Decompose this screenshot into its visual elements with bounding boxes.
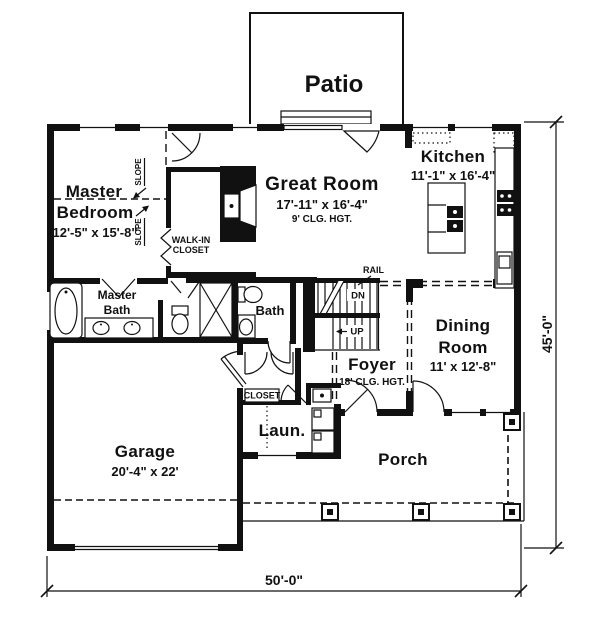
laundry-fixtures	[312, 389, 334, 453]
rail-label: RAIL	[363, 265, 384, 275]
great-room-dims: 17'-11" x 16'-4"	[276, 197, 368, 212]
great-room-label: Great Room	[265, 174, 379, 195]
wall-oven	[497, 190, 514, 202]
master-bath-label-2: Bath	[104, 303, 131, 317]
upper-cabinets	[413, 133, 450, 143]
patio-door-swing	[344, 131, 379, 152]
floor-plan-page: Patio Master Bedroom 12'-5" x 15'-8" SLO…	[0, 0, 600, 619]
dining-room-dims: 11' x 12'-8"	[430, 359, 497, 374]
stairs-up-label: UP	[350, 327, 364, 338]
closet-door-left	[245, 352, 267, 374]
slope-label-1: SLOPE	[134, 158, 143, 186]
up-arrow	[336, 329, 342, 335]
master-bath-fixtures	[50, 282, 232, 338]
master-bath-label-1: Master	[98, 288, 137, 302]
walk-in-closet-label-1: WALK-IN	[172, 235, 211, 245]
double-vanity	[85, 318, 153, 338]
walk-in-closet-label-2: CLOSET	[173, 245, 210, 255]
garage-label: Garage	[115, 442, 175, 461]
garage-dims: 20'-4" x 22'	[111, 464, 178, 479]
patio-area	[250, 13, 403, 127]
patio-door-panel	[284, 126, 342, 130]
fireplace	[220, 166, 256, 242]
dining-room-label-2: Room	[438, 338, 487, 357]
laundry-label: Laun.	[259, 421, 306, 440]
dining-door	[413, 381, 444, 412]
stairs-dn-label: DN	[351, 291, 365, 302]
dryer	[312, 431, 334, 453]
staircase	[315, 276, 380, 350]
master-bedroom-label-2: Bedroom	[57, 203, 134, 222]
porch-label: Porch	[378, 450, 428, 469]
closet-label: CLOSET	[244, 391, 281, 401]
master-bedroom-label-1: Master	[66, 182, 123, 201]
dining-room-label-1: Dining	[436, 316, 491, 335]
bath-label: Bath	[256, 303, 285, 318]
floor-plan-drawing: Patio Master Bedroom 12'-5" x 15'-8" SLO…	[0, 0, 600, 619]
washer	[312, 408, 334, 430]
height-dimension-label: 45'-0"	[539, 315, 555, 353]
width-dimension-label: 50'-0"	[265, 572, 303, 588]
slope-label-2: SLOPE	[134, 218, 143, 246]
kitchen-label: Kitchen	[421, 147, 485, 166]
foyer-label: Foyer	[348, 355, 396, 374]
kitchen-dims: 11'-1" x 16'-4"	[411, 168, 495, 183]
great-room-ceiling: 9' CLG. HGT.	[292, 214, 352, 225]
patio-label: Patio	[305, 71, 364, 98]
master-bedroom-dims: 12'-5" x 15'-8"	[52, 225, 137, 240]
foyer-ceiling: 18' CLG. HGT.	[339, 377, 405, 388]
